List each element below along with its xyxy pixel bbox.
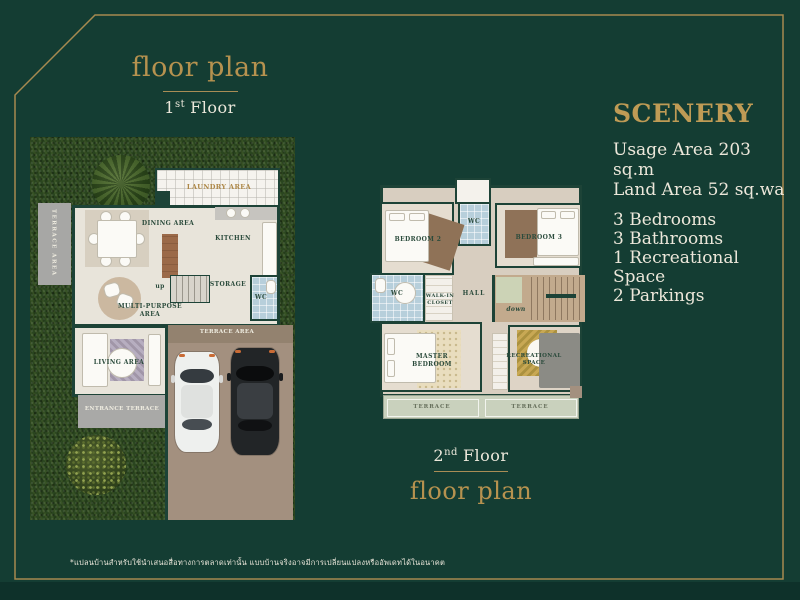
car-black-topview bbox=[231, 348, 279, 455]
bottom-dark-band bbox=[0, 582, 800, 600]
recreation-label: RECREATIONAL SPACE bbox=[499, 353, 569, 368]
planter-box bbox=[455, 178, 491, 204]
project-name: SCENERY bbox=[613, 99, 793, 128]
first-floor-plan: TERRACE AREA LAUNDRY AREA bbox=[30, 137, 295, 520]
car-mirror bbox=[227, 373, 231, 381]
second-floor-plan-title: floor plan bbox=[371, 477, 571, 505]
wood-floor-strip bbox=[162, 234, 178, 278]
wc-lower-label: WC bbox=[382, 290, 412, 298]
stairs-down-label: down bbox=[496, 306, 536, 314]
first-floor-heading-block: floor plan 1stFloor bbox=[100, 52, 300, 117]
pillow bbox=[409, 213, 425, 221]
side-terrace: TERRACE AREA bbox=[38, 203, 71, 285]
pillow bbox=[387, 360, 395, 377]
driveway-terrace-label: TERRACE AREA bbox=[182, 329, 272, 336]
master-label: MASTER BEDROOM bbox=[410, 353, 454, 369]
car-roof bbox=[237, 383, 273, 418]
disclaimer-text: *แปลนบ้านสำหรับใช้นำเสนอสื่อทางการตลาดเท… bbox=[70, 558, 630, 568]
living-label: LIVING AREA bbox=[84, 359, 154, 367]
floor-word: Floor bbox=[190, 98, 236, 117]
driveway bbox=[165, 325, 293, 520]
info-panel: SCENERY Usage Area 203 sq.m Land Area 52… bbox=[613, 99, 793, 306]
wc-upper-label: WC bbox=[459, 218, 489, 226]
floor-number: 2 bbox=[433, 446, 444, 465]
bedroom2-label: BEDROOM 2 bbox=[385, 236, 451, 244]
floor-word: Floor bbox=[463, 446, 509, 465]
car-rear-window bbox=[238, 420, 272, 432]
second-floor-plan: TERRACE TERRACE BEDROOM 2 BEDROOM 3 WC W… bbox=[365, 178, 590, 423]
stairs-up-label: up bbox=[145, 283, 175, 291]
floor-ordinal: st bbox=[175, 99, 185, 110]
pillow bbox=[387, 338, 395, 355]
car-rear-window bbox=[182, 419, 213, 430]
side-terrace-label: TERRACE AREA bbox=[49, 209, 56, 276]
first-floor-plan-title: floor plan bbox=[100, 52, 300, 83]
feature-bathrooms: 3 Bathrooms bbox=[613, 230, 793, 249]
kitchen-sink bbox=[240, 208, 250, 218]
kitchen-sink bbox=[226, 208, 236, 218]
dining-table bbox=[97, 220, 137, 258]
terrace-right-label: TERRACE bbox=[485, 404, 575, 411]
bush bbox=[66, 435, 126, 495]
stair-rail bbox=[546, 294, 576, 298]
car-taillight bbox=[235, 350, 241, 353]
feature-list: 3 Bedrooms 3 Bathrooms 1 Recreational Sp… bbox=[613, 211, 793, 306]
car-taillight bbox=[179, 354, 185, 357]
landing-mat bbox=[496, 277, 522, 303]
dresser bbox=[533, 257, 579, 266]
feature-recreational: 1 Recreational Space bbox=[613, 249, 793, 287]
car-windshield bbox=[236, 366, 273, 381]
pillow bbox=[389, 213, 405, 221]
feature-parkings: 2 Parkings bbox=[613, 287, 793, 306]
pillow bbox=[560, 211, 575, 219]
heading-divider bbox=[434, 471, 508, 472]
car-roof bbox=[181, 385, 214, 418]
storage-label: STORAGE bbox=[198, 281, 258, 289]
car-white-topview bbox=[175, 352, 219, 452]
dining-label: DINING AREA bbox=[133, 220, 203, 228]
brochure-page: floor plan 1stFloor SCENERY Usage Area 2… bbox=[0, 0, 800, 600]
heading-divider bbox=[163, 91, 238, 92]
car-mirror bbox=[219, 375, 223, 383]
hall-label: HALL bbox=[459, 290, 489, 298]
wall-block bbox=[156, 191, 170, 207]
car-taillight bbox=[209, 354, 215, 357]
second-floor-heading-block: 2ndFloor floor plan bbox=[371, 446, 571, 505]
multipurpose-label: MULTI-PURPOSE AREA bbox=[115, 303, 185, 319]
toilet bbox=[266, 280, 276, 294]
laundry-label: LAUNDRY AREA bbox=[179, 183, 259, 192]
bedroom3-label: BEDROOM 3 bbox=[504, 234, 574, 242]
walkin-label: WALK-IN CLOSET bbox=[422, 293, 458, 307]
floor-ordinal: nd bbox=[444, 447, 458, 458]
first-floor-label: 1stFloor bbox=[100, 98, 300, 117]
land-area-line: Land Area 52 sq.wa bbox=[613, 180, 793, 200]
stairs-zone bbox=[492, 275, 585, 322]
car-taillight bbox=[269, 350, 275, 353]
floor-number: 1 bbox=[164, 98, 175, 117]
car-mirror bbox=[171, 375, 175, 383]
car-windshield bbox=[180, 369, 214, 383]
terrace-left-label: TERRACE bbox=[387, 404, 477, 411]
kitchen-counter-right bbox=[262, 222, 277, 280]
usage-area-line: Usage Area 203 sq.m bbox=[613, 140, 793, 180]
terrace-strip: TERRACE TERRACE bbox=[383, 395, 579, 419]
kitchen-label: KITCHEN bbox=[203, 235, 263, 243]
entrance-terrace-label: ENTRANCE TERRACE bbox=[77, 406, 167, 413]
second-floor-label: 2ndFloor bbox=[371, 446, 571, 465]
car-mirror bbox=[279, 373, 283, 381]
laundry-area: LAUNDRY AREA bbox=[155, 168, 280, 207]
wc-label: WC bbox=[246, 294, 276, 302]
bedroom3-bed bbox=[537, 208, 579, 256]
pillow bbox=[541, 211, 556, 219]
side-step bbox=[570, 386, 582, 398]
feature-bedrooms: 3 Bedrooms bbox=[613, 211, 793, 230]
